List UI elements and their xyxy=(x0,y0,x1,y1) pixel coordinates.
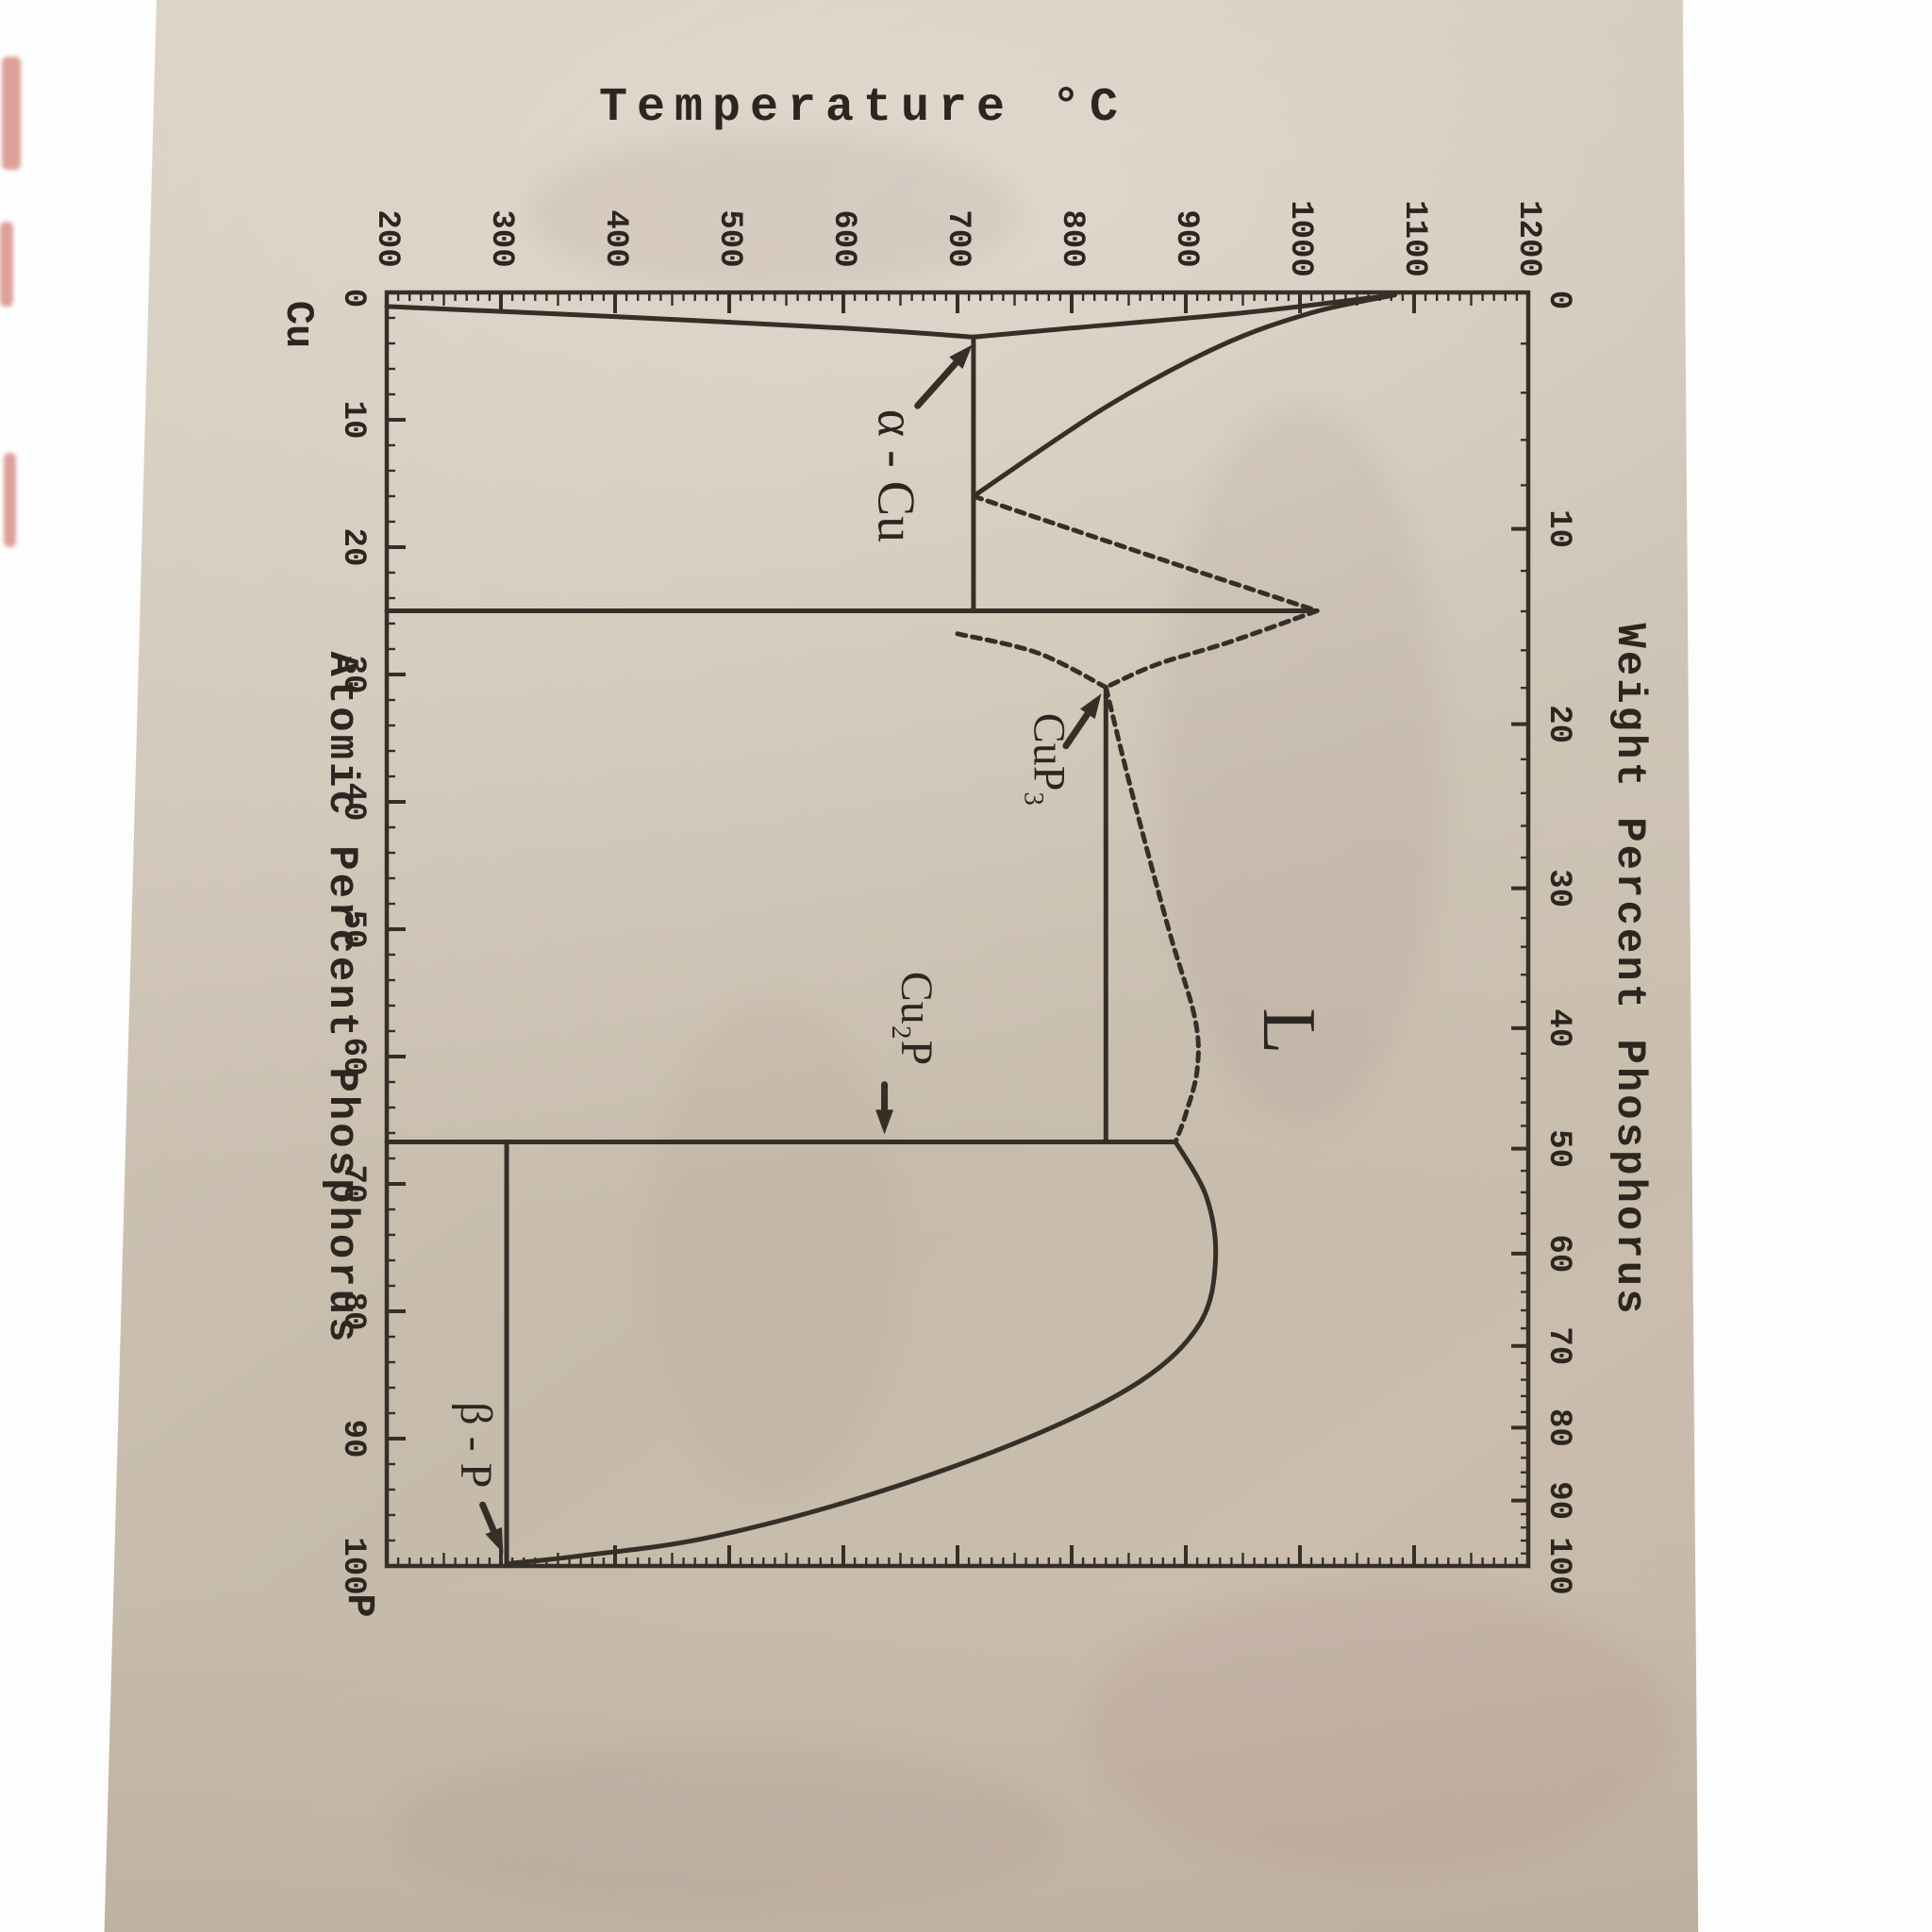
temperature-tick-label: 400 xyxy=(597,209,633,267)
temperature-axis-title: Temperature °C xyxy=(448,81,1278,135)
atomic-percent-tick-label: 20 xyxy=(335,528,371,567)
alpha-cu-arrow-shaft xyxy=(918,363,957,406)
atomic-percent-axis-title: Atomic Percent Phosphorus xyxy=(308,574,365,1423)
weight-percent-axis-title: Weight Percent Phosphorus xyxy=(1596,545,1653,1394)
weight-percent-tick-label: 10 xyxy=(1541,509,1576,548)
temperature-tick-label: 900 xyxy=(1168,209,1204,267)
temperature-tick-label: 200 xyxy=(369,209,405,267)
cu-end-label: Cu xyxy=(275,301,321,348)
curve-cup3-lower-edge xyxy=(958,634,1106,688)
weight-percent-tick-label: 40 xyxy=(1541,1008,1576,1047)
phase-label-cup: Cu₂P xyxy=(891,972,941,1065)
curve-liquidus-cup3-to-e2 xyxy=(1106,611,1317,688)
weight-percent-tick-label: 100 xyxy=(1541,1537,1576,1594)
beta-p-arrow-shaft xyxy=(483,1505,494,1530)
weight-percent-tick-label: 0 xyxy=(1541,291,1576,309)
atomic-percent-tick-label: 90 xyxy=(335,1420,371,1458)
weight-percent-tick-label: 70 xyxy=(1541,1326,1576,1365)
weight-percent-tick-label: 30 xyxy=(1541,869,1576,908)
curve-alpha-solvus xyxy=(387,307,974,337)
weight-percent-tick-label: 80 xyxy=(1541,1408,1576,1447)
temperature-tick-label: 800 xyxy=(1054,209,1090,267)
beta-p-arrow-head xyxy=(486,1527,504,1554)
weight-percent-tick-label: 50 xyxy=(1541,1129,1576,1168)
temperature-tick-label: 1100 xyxy=(1396,200,1432,277)
atomic-percent-tick-label: 100 xyxy=(335,1537,371,1594)
phase-label-cup: CuP₃ xyxy=(1024,713,1074,807)
weight-percent-tick-label: 20 xyxy=(1541,705,1576,743)
curve-liquidus-cu xyxy=(974,295,1394,496)
atomic-percent-tick-label: 10 xyxy=(335,401,371,440)
temperature-tick-label: 500 xyxy=(711,209,747,267)
curve-liquidus-e2-to-cu2p xyxy=(1106,688,1198,1142)
phase-label-l: L xyxy=(1247,1008,1330,1055)
atomic-percent-tick-label: 0 xyxy=(335,289,371,308)
cu2p-arrow-head xyxy=(875,1109,893,1134)
temperature-tick-label: 300 xyxy=(483,209,519,267)
weight-percent-tick-label: 90 xyxy=(1541,1481,1576,1520)
temperature-tick-label: 700 xyxy=(940,209,975,267)
plot-border xyxy=(387,292,1528,1566)
weight-percent-tick-label: 60 xyxy=(1541,1234,1576,1273)
curve-liquidus-p-side xyxy=(510,1141,1216,1563)
temperature-tick-label: 1200 xyxy=(1510,200,1546,277)
phase-label-p: β - P xyxy=(451,1402,501,1488)
curve-liquidus-e1-to-cup3 xyxy=(974,496,1317,611)
temperature-tick-label: 1000 xyxy=(1282,200,1318,277)
p-end-label: P xyxy=(337,1593,382,1617)
temperature-tick-label: 600 xyxy=(825,209,861,267)
phase-label-cu: α - Cu xyxy=(867,409,925,542)
